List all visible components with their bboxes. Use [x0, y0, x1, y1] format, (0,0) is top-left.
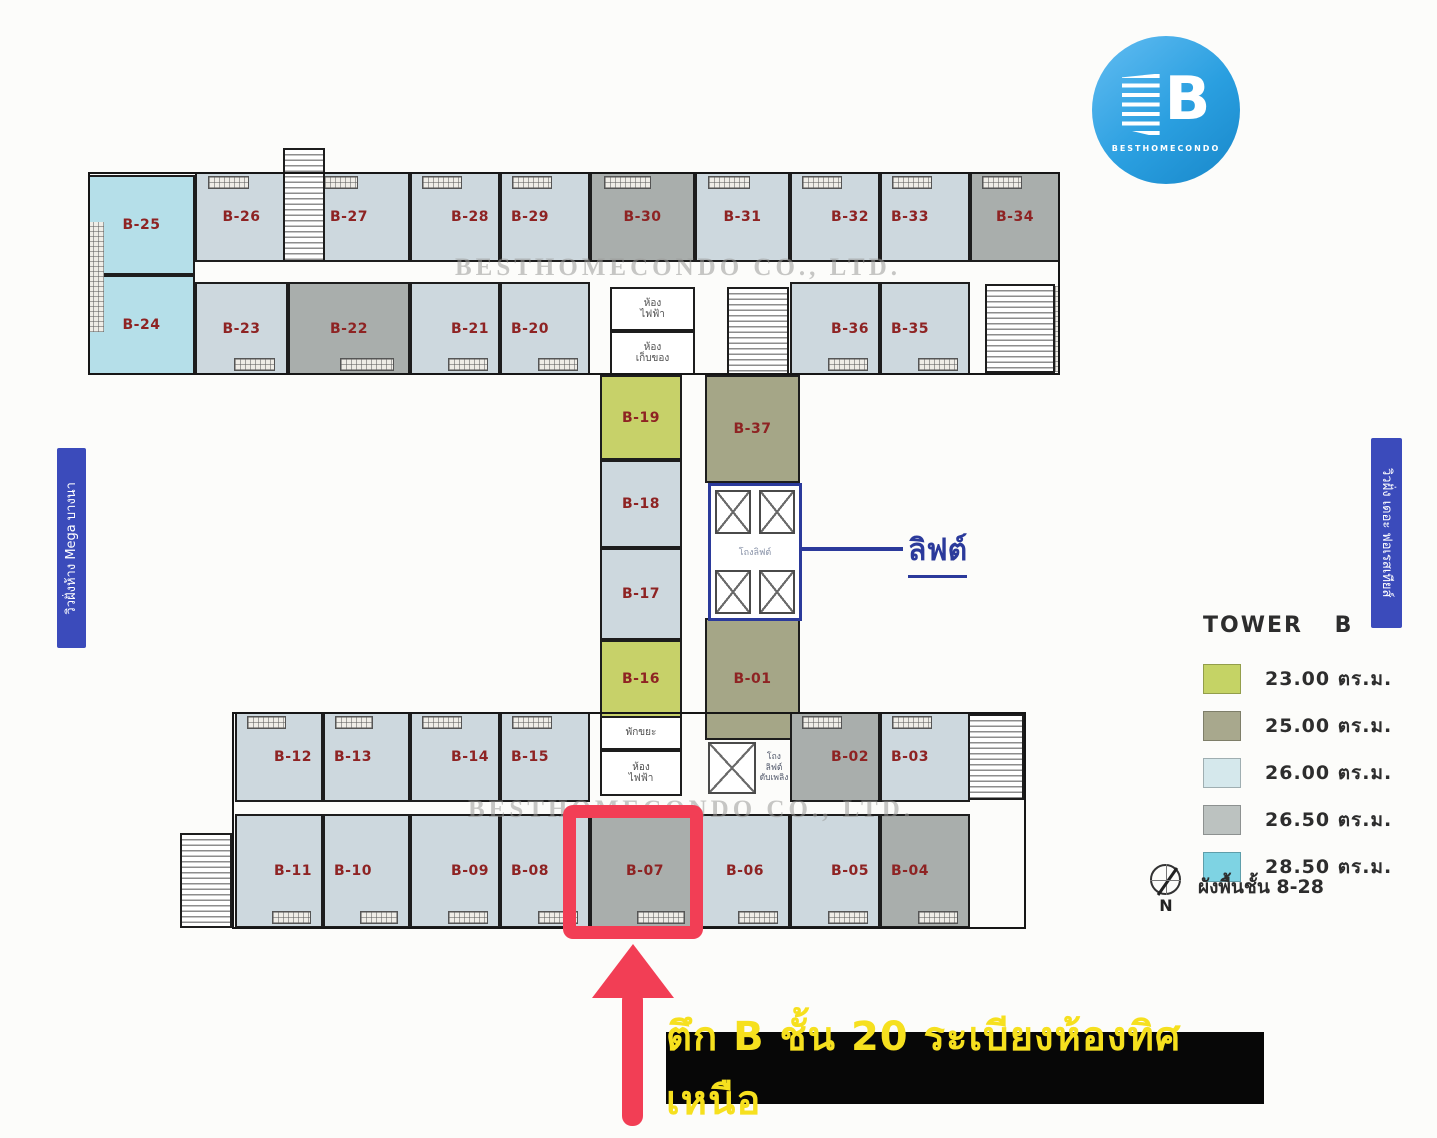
unit-B-06: B-06	[700, 814, 790, 928]
caption-text: ตึก B ชั้น 20 ระเบียงห้องทิศเหนือ	[666, 1004, 1264, 1132]
unit-B-11: B-11	[235, 814, 323, 928]
logo-brand-text: BESTHOMECONDO	[1112, 144, 1221, 153]
unit-label: B-05	[831, 863, 869, 879]
unit-label: B-36	[831, 321, 869, 337]
unit-B-05: B-05	[790, 814, 880, 928]
unit-label: B-33	[891, 209, 929, 225]
legend-row: 23.00 ตร.ม.	[1203, 664, 1392, 694]
legend: TOWER B 23.00 ตร.ม.25.00 ตร.ม.26.00 ตร.ม…	[1203, 613, 1392, 899]
fire-elevator-shaft-icon	[708, 742, 756, 794]
unit-label: B-13	[334, 749, 372, 765]
elevator-lobby-label: โถงลิฟต์	[711, 486, 799, 618]
unit-label: B-26	[223, 209, 261, 225]
unit-label: B-04	[891, 863, 929, 879]
compass-circle	[1150, 864, 1181, 895]
legend-row: 26.50 ตร.ม.	[1203, 805, 1392, 835]
unit-B-21: B-21	[410, 282, 500, 375]
unit-B-23: B-23	[195, 282, 288, 375]
legend-swatch	[1203, 711, 1241, 741]
unit-B-26: B-26	[195, 172, 288, 262]
unit-label: B-29	[511, 209, 549, 225]
unit-label: B-19	[622, 410, 660, 426]
compass-needle	[1157, 867, 1178, 896]
elevator-callout-line	[802, 547, 903, 551]
compass-icon: N	[1150, 864, 1182, 915]
unit-B-04: B-04	[880, 814, 970, 928]
unit-label: B-28	[451, 209, 489, 225]
stairwell	[283, 148, 325, 262]
unit-B-01: B-01	[705, 618, 800, 740]
unit-B-10: B-10	[323, 814, 410, 928]
unit-label: B-06	[726, 863, 764, 879]
legend-row: 26.00 ตร.ม.	[1203, 758, 1392, 788]
unit-label: B-32	[831, 209, 869, 225]
stairwell	[727, 287, 789, 375]
unit-label: B-34	[996, 209, 1034, 225]
unit-B-36: B-36	[790, 282, 880, 375]
elevator-core: โถงลิฟต์	[708, 483, 802, 621]
unit-label: B-14	[451, 749, 489, 765]
unit-label: B-03	[891, 749, 929, 765]
unit-label: B-09	[451, 863, 489, 879]
unit-B-34: B-34	[970, 172, 1060, 262]
unit-B-35: B-35	[880, 282, 970, 375]
unit-B-17: B-17	[600, 548, 682, 640]
utility-room: ห้อง ไฟฟ้า	[610, 287, 695, 331]
unit-B-37: B-37	[705, 375, 800, 483]
legend-items: 23.00 ตร.ม.25.00 ตร.ม.26.00 ตร.ม.26.50 ต…	[1203, 664, 1392, 882]
highlight-box-b07	[563, 805, 703, 939]
building-stripes-icon	[1122, 74, 1160, 138]
unit-B-20: B-20	[500, 282, 590, 375]
unit-label: B-20	[511, 321, 549, 337]
building-logo-icon: B	[1122, 68, 1211, 140]
unit-label: B-02	[831, 749, 869, 765]
watermark-top: BESTHOMECONDO CO., LTD.	[455, 254, 901, 282]
compass-north-letter: N	[1150, 896, 1182, 915]
stairwell	[985, 284, 1055, 373]
unit-B-18: B-18	[600, 460, 682, 548]
unit-label: B-35	[891, 321, 929, 337]
floor-note-row: N ผังพื้นชั้น 8-28	[1150, 864, 1324, 915]
unit-label: B-16	[622, 671, 660, 687]
stairwell	[968, 714, 1024, 800]
unit-label: B-01	[734, 671, 772, 687]
right-view-text: วิวฝั่ง เดอะ ฟอเรสเทียส์	[1376, 468, 1397, 597]
elevator-callout-label: ลิฟต์	[908, 527, 967, 578]
unit-label: B-11	[274, 863, 312, 879]
unit-B-09: B-09	[410, 814, 500, 928]
legend-swatch	[1203, 805, 1241, 835]
left-view-label: วิวฝั่งห้าง Mega บางนา	[57, 448, 86, 648]
floor-plan-page: B BESTHOMECONDO วิวฝั่งห้าง Mega บางนา ว…	[0, 0, 1437, 1138]
unit-B-32: B-32	[790, 172, 880, 262]
unit-label: B-08	[511, 863, 549, 879]
unit-B-28: B-28	[410, 172, 500, 262]
stairwell	[180, 833, 232, 928]
unit-B-19: B-19	[600, 375, 682, 460]
unit-B-33: B-33	[880, 172, 970, 262]
unit-B-02: B-02	[790, 712, 880, 802]
unit-B-22: B-22	[288, 282, 410, 375]
unit-label: B-12	[274, 749, 312, 765]
legend-swatch	[1203, 664, 1241, 694]
floor-range-label: ผังพื้นชั้น 8-28	[1198, 872, 1324, 902]
legend-area-label: 23.00 ตร.ม.	[1265, 664, 1392, 694]
unit-B-16: B-16	[600, 640, 682, 718]
unit-label: B-10	[334, 863, 372, 879]
unit-B-03: B-03	[880, 712, 970, 802]
left-view-text: วิวฝั่งห้าง Mega บางนา	[61, 482, 82, 615]
unit-label: B-31	[724, 209, 762, 225]
unit-B-25: B-25	[88, 175, 195, 275]
unit-label: B-27	[330, 209, 368, 225]
legend-title: TOWER B	[1203, 613, 1392, 638]
unit-label: B-37	[734, 421, 772, 437]
unit-B-30: B-30	[590, 172, 695, 262]
hatch-area	[88, 222, 104, 332]
utility-room: ห้อง ไฟฟ้า	[600, 750, 682, 796]
utility-room: ห้อง เก็บของ	[610, 331, 695, 375]
unit-B-15: B-15	[500, 712, 590, 802]
unit-B-31: B-31	[695, 172, 790, 262]
utility-room: พักขยะ	[600, 716, 682, 750]
legend-area-label: 26.00 ตร.ม.	[1265, 758, 1392, 788]
unit-B-14: B-14	[410, 712, 500, 802]
legend-swatch	[1203, 758, 1241, 788]
unit-label: B-30	[624, 209, 662, 225]
legend-area-label: 26.50 ตร.ม.	[1265, 805, 1392, 835]
unit-B-24: B-24	[88, 275, 195, 375]
highlight-arrow-shaft	[622, 990, 643, 1126]
logo-letter: B	[1165, 68, 1211, 131]
unit-label: B-18	[622, 496, 660, 512]
note-label: โถง ลิฟต์ ดับเพลิง	[756, 742, 792, 794]
unit-label: B-17	[622, 586, 660, 602]
unit-label: B-23	[223, 321, 261, 337]
besthomecondo-logo: B BESTHOMECONDO	[1092, 36, 1240, 184]
unit-B-29: B-29	[500, 172, 590, 262]
legend-row: 25.00 ตร.ม.	[1203, 711, 1392, 741]
unit-label: B-25	[123, 217, 161, 233]
unit-label: B-22	[330, 321, 368, 337]
right-view-label: วิวฝั่ง เดอะ ฟอเรสเทียส์	[1371, 438, 1402, 628]
legend-area-label: 25.00 ตร.ม.	[1265, 711, 1392, 741]
unit-B-13: B-13	[323, 712, 410, 802]
unit-B-12: B-12	[235, 712, 323, 802]
unit-label: B-24	[123, 317, 161, 333]
unit-label: B-15	[511, 749, 549, 765]
unit-label: B-21	[451, 321, 489, 337]
caption-banner: ตึก B ชั้น 20 ระเบียงห้องทิศเหนือ	[666, 1032, 1264, 1104]
